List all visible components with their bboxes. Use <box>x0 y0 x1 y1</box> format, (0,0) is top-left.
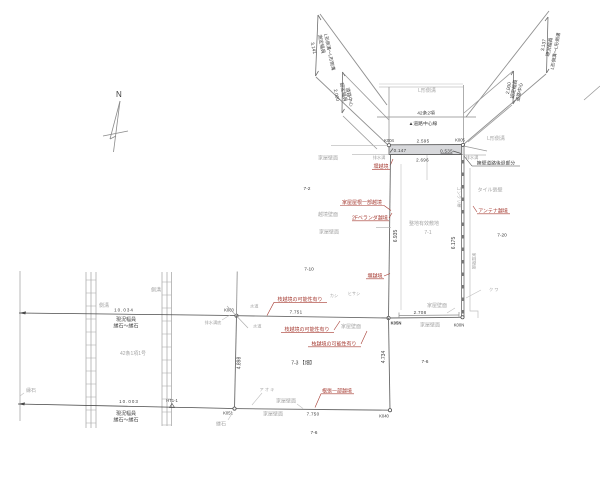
svg-text:10.034: 10.034 <box>114 308 134 313</box>
svg-text:越境壁面: 越境壁面 <box>318 211 338 218</box>
svg-text:4.898: 4.898 <box>237 357 243 370</box>
svg-text:家屋壁面: 家屋壁面 <box>318 155 338 162</box>
svg-text:L形側溝: L形側溝 <box>487 135 505 142</box>
svg-text:家屋壁面: 家屋壁面 <box>471 253 478 270</box>
svg-text:7-6: 7-6 <box>422 359 429 365</box>
svg-text:コンクリ塀: コンクリ塀 <box>456 187 463 208</box>
svg-text:K004: K004 <box>384 138 394 143</box>
svg-text:縁石〜縁石: 縁石〜縁石 <box>113 323 138 330</box>
svg-text:2.708: 2.708 <box>414 310 427 315</box>
svg-text:排水溝: 排水溝 <box>466 154 479 161</box>
svg-text:42条1項1号: 42条1項1号 <box>120 350 146 357</box>
svg-text:K05N: K05N <box>391 321 402 326</box>
svg-text:縁石: 縁石 <box>216 421 226 428</box>
svg-text:家屋壁面: 家屋壁面 <box>427 302 447 309</box>
svg-text:HT1-1: HT1-1 <box>166 398 178 403</box>
svg-text:排水溝底: 排水溝底 <box>205 319 222 326</box>
svg-text:K040: K040 <box>379 414 389 419</box>
svg-text:7.751: 7.751 <box>290 310 303 315</box>
svg-text:縁石〜縁石: 縁石〜縁石 <box>113 417 138 424</box>
svg-text:K00N: K00N <box>454 323 464 328</box>
svg-text:0.535: 0.535 <box>440 149 453 154</box>
svg-text:K005: K005 <box>455 138 465 143</box>
svg-text:7-2: 7-2 <box>304 186 311 192</box>
svg-text:整地有效敷地: 整地有效敷地 <box>409 220 439 227</box>
svg-text:現況幅員: 現況幅員 <box>116 316 136 323</box>
svg-text:家屋壁面: 家屋壁面 <box>276 398 296 405</box>
svg-text:2.696: 2.696 <box>416 158 429 163</box>
svg-text:タイル張壁: タイル張壁 <box>477 187 502 194</box>
svg-text:42条2項: 42条2項 <box>417 110 435 117</box>
svg-text:水道: 水道 <box>250 303 259 310</box>
svg-text:L形側溝: L形側溝 <box>418 87 436 94</box>
svg-text:7.750: 7.750 <box>307 412 320 417</box>
svg-text:塀越境: 塀越境 <box>367 273 382 280</box>
svg-text:水道: 水道 <box>253 323 262 330</box>
svg-text:10.003: 10.003 <box>119 399 139 404</box>
svg-text:枝越境の可能性有り: 枝越境の可能性有り <box>311 341 356 348</box>
svg-text:2.595: 2.595 <box>417 139 430 144</box>
svg-text:現況幅員: 現況幅員 <box>116 410 136 417</box>
svg-text:根張一部越境: 根張一部越境 <box>322 388 352 395</box>
svg-text:0.147: 0.147 <box>394 148 407 153</box>
svg-text:7-1: 7-1 <box>424 230 431 236</box>
svg-text:4.734: 4.734 <box>381 351 387 364</box>
svg-text:枝越境の可能性有り: 枝越境の可能性有り <box>277 296 322 303</box>
svg-text:家屋壁面: 家屋壁面 <box>319 229 339 236</box>
svg-text:枝越境の可能性有り: 枝越境の可能性有り <box>284 326 329 333</box>
svg-text:側溝: 側溝 <box>151 287 161 294</box>
svg-text:塀越境: 塀越境 <box>373 163 388 170</box>
svg-text:家屋屋根一部越境: 家屋屋根一部越境 <box>342 199 382 206</box>
svg-text:アンテナ越境: アンテナ越境 <box>478 208 508 215</box>
svg-text:2Fベランダ越境: 2Fベランダ越境 <box>352 215 388 222</box>
svg-text:N: N <box>116 90 122 99</box>
svg-text:7-3 【畑】: 7-3 【畑】 <box>291 360 315 367</box>
svg-text:7-10: 7-10 <box>304 267 314 273</box>
svg-text:排水溝: 排水溝 <box>373 154 386 161</box>
svg-text:7-6: 7-6 <box>311 430 318 436</box>
svg-text:側溝: 側溝 <box>99 302 109 309</box>
svg-text:家屋壁面: 家屋壁面 <box>263 411 283 418</box>
svg-text:擁壁道路後退部分: 擁壁道路後退部分 <box>477 160 516 167</box>
svg-text:縁石: 縁石 <box>26 387 36 394</box>
svg-text:6.175: 6.175 <box>451 237 457 250</box>
svg-text:7-20: 7-20 <box>497 233 507 239</box>
svg-text:家屋壁面: 家屋壁面 <box>420 322 440 329</box>
svg-text:▲道路中心線: ▲道路中心線 <box>409 120 438 127</box>
svg-text:6.935: 6.935 <box>393 230 399 243</box>
svg-text:家屋壁面: 家屋壁面 <box>341 323 361 330</box>
svg-text:K051: K051 <box>223 411 233 416</box>
